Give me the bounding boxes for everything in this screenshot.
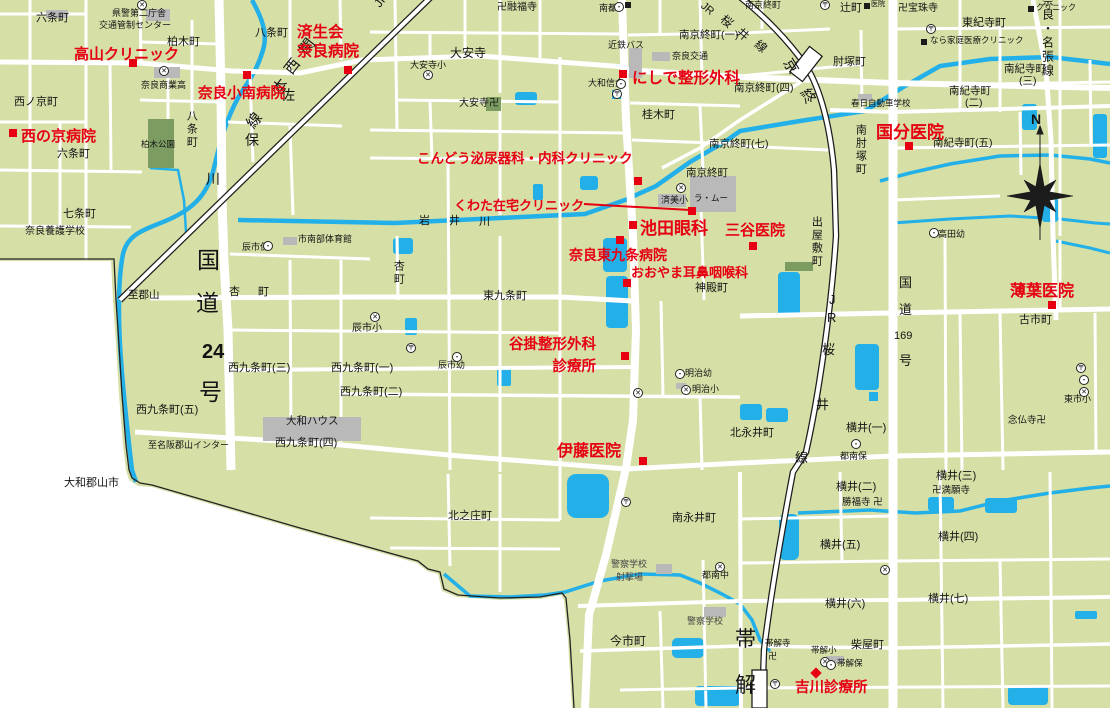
place-label: 奈良商業高 xyxy=(141,80,186,90)
post-office-icon: 〒 xyxy=(770,679,780,689)
place-label: 横井(七) xyxy=(928,593,968,605)
map-labels: N 六条町県警第二庁舎交通管制センター柏木町八条町西ノ京町六条町七条町奈良養護学… xyxy=(0,0,1110,708)
poi-square-icon xyxy=(864,3,870,9)
place-label: J xyxy=(829,293,836,308)
place-label: 岩 xyxy=(419,215,430,227)
school-icon: ✕ xyxy=(633,388,643,398)
place-label: 杏 xyxy=(229,286,240,298)
place-label: 線 xyxy=(795,451,808,466)
place-label: 帯 xyxy=(735,628,756,652)
place-label: 古市町 xyxy=(1019,314,1052,326)
post-office-icon: 〒 xyxy=(621,497,631,507)
place-label: 西九条町(五) xyxy=(136,404,198,416)
place-label: 解 xyxy=(735,674,756,698)
facility-icon: ・ xyxy=(263,241,273,251)
place-label: 終 xyxy=(796,86,818,108)
place-label: 辻町 xyxy=(840,2,862,14)
place-label: 国 xyxy=(899,276,912,291)
place-label: 線 xyxy=(244,110,266,132)
place-label: 西九条町(二) xyxy=(340,386,402,398)
post-office-icon: 〒 xyxy=(820,0,830,10)
place-label: 道 xyxy=(899,303,912,318)
place-label: 京 xyxy=(779,56,801,78)
marker-ikeda-ganka xyxy=(629,221,637,229)
school-icon: ✕ xyxy=(159,66,169,76)
label-saiseikai-nara-hospital: 済生会 奈良病院 xyxy=(297,24,359,61)
label-nishinokyo-hospital: 西の京病院 xyxy=(21,126,96,149)
poi-square-icon xyxy=(921,39,927,45)
place-label: 至郡山 xyxy=(128,290,160,302)
place-label: 南京終町(一) xyxy=(679,30,739,42)
place-label: 桜 xyxy=(822,343,835,358)
label-ito-iin: 伊藤医院 xyxy=(557,440,621,464)
school-icon: ✕ xyxy=(1079,387,1089,397)
place-label: 横井(一) xyxy=(846,422,886,434)
place-label: 西九条町(一) xyxy=(331,362,393,374)
place-label: 道 xyxy=(196,291,219,317)
place-label: 奈良交通 xyxy=(672,51,708,61)
place-label: 済美小 xyxy=(661,195,688,205)
place-label: 春日自動車学校 xyxy=(851,99,911,109)
place-label: 井 xyxy=(449,215,460,227)
label-kuwata-zaitaku-clinic: くわた在宅クリニック xyxy=(454,196,584,216)
school-icon: ✕ xyxy=(676,183,686,193)
place-label: 肘塚町 xyxy=(833,56,866,68)
place-label: 北永井町 xyxy=(730,427,774,439)
label-ikeda-ganka: 池田眼科 xyxy=(640,216,708,242)
facility-icon: ・ xyxy=(851,439,861,449)
place-label: 号 xyxy=(199,380,222,406)
place-label: 念仏寺卍 xyxy=(1008,416,1046,427)
place-label: 北之庄町 xyxy=(448,510,492,522)
place-label: 帯解保 xyxy=(837,659,863,669)
place-label: 辰市幼 xyxy=(438,360,465,370)
place-label: 交通管制センター xyxy=(99,20,171,30)
place-label: 川 xyxy=(206,172,220,188)
marker-kuwata-zaitaku-clinic xyxy=(688,207,696,215)
place-label: 出屋敷町 xyxy=(810,216,822,268)
place-label: 帯解小 xyxy=(811,646,837,656)
place-label: 杏町 xyxy=(392,260,404,286)
place-label: 169 xyxy=(894,330,912,342)
place-label: 都南中 xyxy=(702,570,729,580)
place-label: 町 xyxy=(258,286,269,298)
place-label: 八条町 xyxy=(185,110,197,149)
school-icon: ✕ xyxy=(137,0,147,10)
place-label: 南永井町 xyxy=(672,512,716,524)
label-yoshikawa-shinryojo: 吉川診療所 xyxy=(795,678,868,700)
poi-square-icon xyxy=(625,2,631,8)
place-label: 川 xyxy=(479,216,490,228)
facility-icon: ・ xyxy=(675,369,685,379)
facility-icon: ・ xyxy=(826,660,836,670)
facility-icon: ・ xyxy=(452,352,462,362)
place-label: 保 xyxy=(245,133,259,149)
place-label: 卍 xyxy=(768,651,777,661)
place-label: (三) xyxy=(1019,76,1037,88)
label-oyama-jibiinkoka: おおやま耳鼻咽喉科 xyxy=(631,263,748,283)
place-label: 南京終町 xyxy=(686,168,728,180)
place-label: 西ノ京町 xyxy=(14,96,58,108)
marker-nishinokyo-hospital xyxy=(9,129,17,137)
place-label: 勝福寺 卍 xyxy=(842,498,883,509)
place-label: 南京終町(七) xyxy=(709,139,769,151)
place-label: 横井(五) xyxy=(820,539,860,551)
marker-kokubu-iin xyxy=(905,142,913,150)
place-label: 卍満願寺 xyxy=(932,486,970,497)
marker-oyama-jibiinkoka xyxy=(623,279,631,287)
place-label: 横井(六) xyxy=(825,598,865,610)
label-tanigake-seikeigeka-shinryojo: 谷掛整形外科 診療所 xyxy=(509,334,596,379)
marker-usuha-iin xyxy=(1048,301,1056,309)
label-nishide-seikeigeka: にしで整形外科 xyxy=(632,67,740,90)
place-label: 南紀寺町 xyxy=(949,86,991,98)
marker-kondo-hinyokika-naika-clinic xyxy=(634,177,642,185)
place-label: 24 xyxy=(202,341,224,363)
marker-ito-iin xyxy=(639,457,647,465)
marker-saiseikai-nara-hospital xyxy=(344,66,352,74)
place-label: 今市町 xyxy=(610,635,646,648)
place-label: 医院 xyxy=(871,1,885,9)
place-label: 大安寺 xyxy=(450,47,486,60)
facility-icon: ・ xyxy=(616,79,626,89)
marker-yoshikawa-shinryojo xyxy=(810,667,821,678)
place-label: 近鉄バス xyxy=(608,40,644,50)
place-label: 奈良・名張線 xyxy=(1040,0,1053,78)
poi-square-icon xyxy=(1028,6,1034,12)
school-icon: ✕ xyxy=(423,70,433,80)
place-label: 至名阪郡山インター xyxy=(148,440,229,450)
place-label: 帯解寺 xyxy=(765,639,791,649)
label-mitani-iin: 三谷医院 xyxy=(725,220,785,243)
place-label: 大和ハウス xyxy=(286,416,339,428)
place-label: 六条町 xyxy=(36,12,69,24)
place-label: 南京終町(四) xyxy=(734,83,794,95)
place-label: 南京終町 xyxy=(745,0,781,10)
place-label: 大和郡山市 xyxy=(64,477,119,489)
place-label: 井 xyxy=(816,398,829,413)
facility-icon: ・ xyxy=(929,228,939,238)
place-label: 警察学校 xyxy=(687,616,723,626)
marker-nishide-seikeigeka xyxy=(619,70,627,78)
place-label: 桂木町 xyxy=(642,109,675,121)
place-label: R xyxy=(827,311,836,326)
place-label: 東紀寺町 xyxy=(962,17,1006,29)
marker-mitani-iin xyxy=(749,242,757,250)
place-label: 線 xyxy=(751,38,769,56)
place-label: 神殿町 xyxy=(695,282,728,294)
place-label: 市南部体育館 xyxy=(298,234,352,244)
place-label: 南肘塚町 xyxy=(854,124,866,176)
place-label: 柏木公園 xyxy=(141,140,175,150)
place-label: 西九条町(四) xyxy=(275,437,337,449)
place-label: 国 xyxy=(197,248,220,274)
school-icon: ✕ xyxy=(681,385,691,395)
place-label: 大安寺小 xyxy=(410,60,446,70)
post-office-icon: 〒 xyxy=(612,89,622,99)
place-label: 六条町 xyxy=(57,148,90,160)
place-label: 奈良養護学校 xyxy=(25,226,85,237)
place-label: 号 xyxy=(899,354,912,369)
place-label: 八条町 xyxy=(255,27,288,39)
facility-icon: ・ xyxy=(614,2,624,12)
city-medical-map: N 六条町県警第二庁舎交通管制センター柏木町八条町西ノ京町六条町七条町奈良養護学… xyxy=(0,0,1110,708)
place-label: (二) xyxy=(965,98,983,110)
place-label: 柴屋町 xyxy=(851,639,884,651)
school-icon: ✕ xyxy=(370,312,380,322)
marker-tanigake-seikeigeka-shinryojo xyxy=(621,352,629,360)
place-label: 大安寺卍 xyxy=(459,98,499,109)
place-label: 明治小 xyxy=(692,384,719,394)
school-icon: ✕ xyxy=(715,562,725,572)
place-label: なら家庭医療クリニック xyxy=(930,36,1024,46)
place-label: 西九条町(三) xyxy=(228,362,290,374)
facility-icon: ・ xyxy=(1079,375,1089,385)
post-office-icon: 〒 xyxy=(926,24,936,34)
label-usuha-iin: 薄葉医院 xyxy=(1010,280,1074,304)
post-office-icon: 〒 xyxy=(1076,363,1086,373)
label-kondo-hinyokika-naika-clinic: こんどう泌尿器科・内科クリニック xyxy=(417,149,633,169)
place-label: JR xyxy=(372,0,392,10)
place-label: 都南保 xyxy=(840,451,867,461)
place-label: 射撃場 xyxy=(616,572,643,582)
place-label: 卍宝珠寺 xyxy=(898,3,938,14)
place-label: 東九条町 xyxy=(483,290,527,302)
place-label: 横井(三) xyxy=(936,470,976,482)
label-takayama-clinic: 高山クリニック xyxy=(74,44,179,67)
place-label: 卍融福寺 xyxy=(497,2,537,13)
place-label: 七条町 xyxy=(63,208,96,220)
place-label: 明治幼 xyxy=(685,368,712,378)
marker-takayama-clinic xyxy=(129,59,137,67)
school-icon: ✕ xyxy=(880,565,890,575)
place-label: 高田幼 xyxy=(938,229,965,239)
post-office-icon: 〒 xyxy=(406,343,416,353)
compass-north-label: N xyxy=(1031,112,1041,128)
place-label: ラ・ムー xyxy=(694,194,728,204)
place-label: 警察学校 xyxy=(611,559,647,569)
place-label: 横井(二) xyxy=(836,481,876,493)
place-label: JR xyxy=(698,0,716,18)
marker-nara-konan-hospital xyxy=(243,71,251,79)
place-label: 辰市小 xyxy=(352,323,382,334)
place-label: 横井(四) xyxy=(938,531,978,543)
label-nara-konan-hospital: 奈良小南病院 xyxy=(198,84,285,106)
marker-nara-higashikujo-hospital xyxy=(616,236,624,244)
